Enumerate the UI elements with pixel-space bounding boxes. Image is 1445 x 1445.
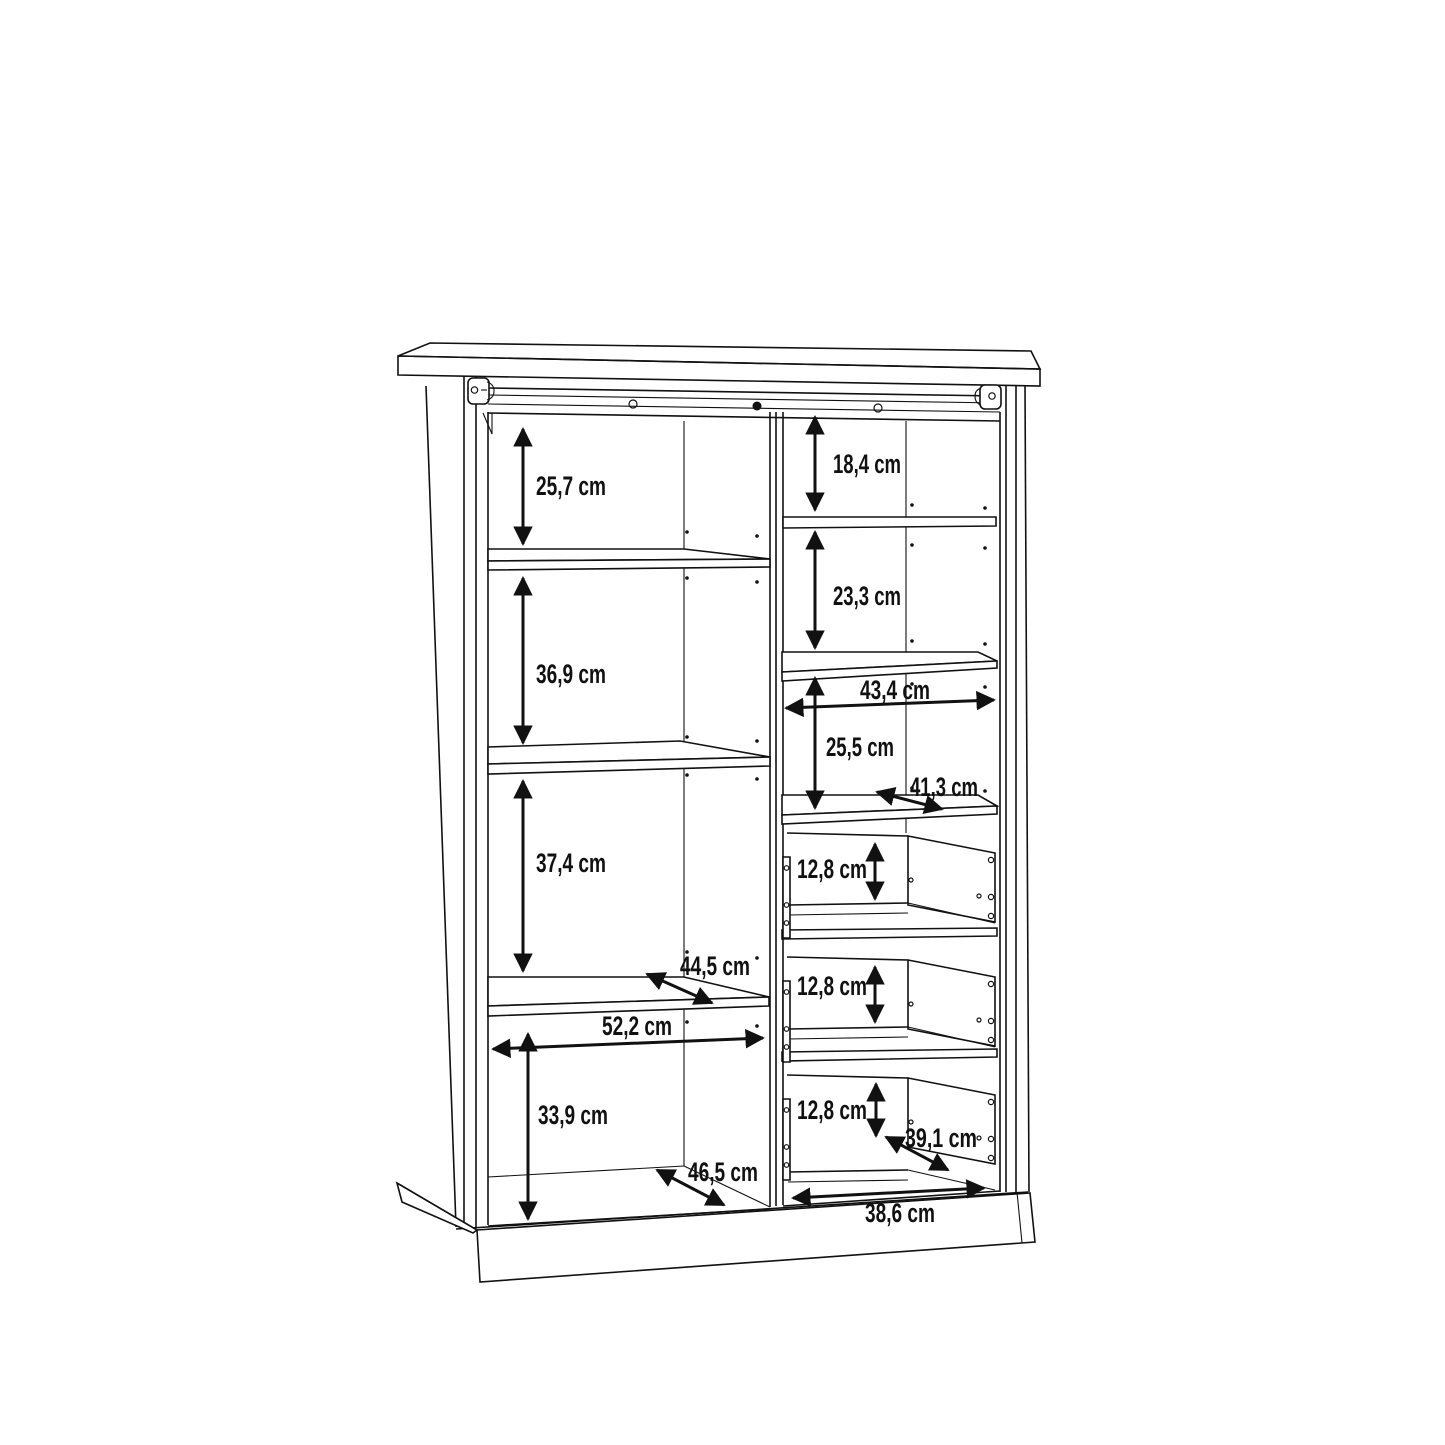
- left-door-roller: [468, 378, 494, 404]
- drawer-support-board-2: [782, 1049, 997, 1061]
- left-shelf-2: [488, 741, 770, 774]
- dim-label-left-37-4: 37,4 cm: [536, 848, 606, 878]
- center-partition: [770, 412, 783, 1207]
- dim-label-left-46-5: 46,5 cm: [688, 1157, 758, 1187]
- dim-label-right-39-1: 39,1 cm: [905, 1123, 977, 1153]
- dim-label-right-38-6: 38,6 cm: [865, 1198, 935, 1228]
- dim-label-drawer3-12-8: 12,8 cm: [797, 1095, 867, 1125]
- rail-screw-hole: [753, 402, 762, 411]
- dim-label-left-33-9: 33,9 cm: [538, 1100, 608, 1130]
- dim-label-left-44-5: 44,5 cm: [680, 951, 750, 981]
- dim-label-right-23-3: 23,3 cm: [833, 581, 901, 611]
- right-shelf-1: [783, 517, 996, 528]
- cabinet-drawing-svg: 25,7 cm 36,9 cm 37,4 cm 44,5 cm 52,2 cm …: [0, 0, 1445, 1445]
- dim-label-left-52-2: 52,2 cm: [602, 1011, 672, 1041]
- right-side-panel: [1000, 385, 1029, 1192]
- dim-label-right-25-5: 25,5 cm: [826, 732, 894, 762]
- drawer-1: [783, 833, 995, 938]
- right-door-roller: [975, 385, 1001, 409]
- dim-label-drawer1-12-8: 12,8 cm: [797, 854, 867, 884]
- dim-label-left-36-9: 36,9 cm: [536, 659, 606, 689]
- top-board: [398, 343, 1040, 386]
- rail-screw-hole: [874, 404, 882, 412]
- left-side-panel: [426, 376, 488, 1228]
- dim-label-left-25-7: 25,7 cm: [536, 471, 606, 501]
- left-column-shelves: [488, 549, 770, 1016]
- left-shelf-1: [488, 549, 770, 570]
- dim-label-drawer2-12-8: 12,8 cm: [797, 971, 867, 1001]
- dim-label-right-43-4: 43,4 cm: [860, 675, 930, 705]
- dim-label-right-18-4: 18,4 cm: [833, 449, 901, 479]
- drawer-support-board-1: [782, 928, 997, 939]
- sliding-door-rail: [488, 388, 1000, 421]
- dim-label-right-41-3: 41,3 cm: [910, 772, 978, 802]
- cabinet-dimension-diagram: 25,7 cm 36,9 cm 37,4 cm 44,5 cm 52,2 cm …: [0, 0, 1445, 1445]
